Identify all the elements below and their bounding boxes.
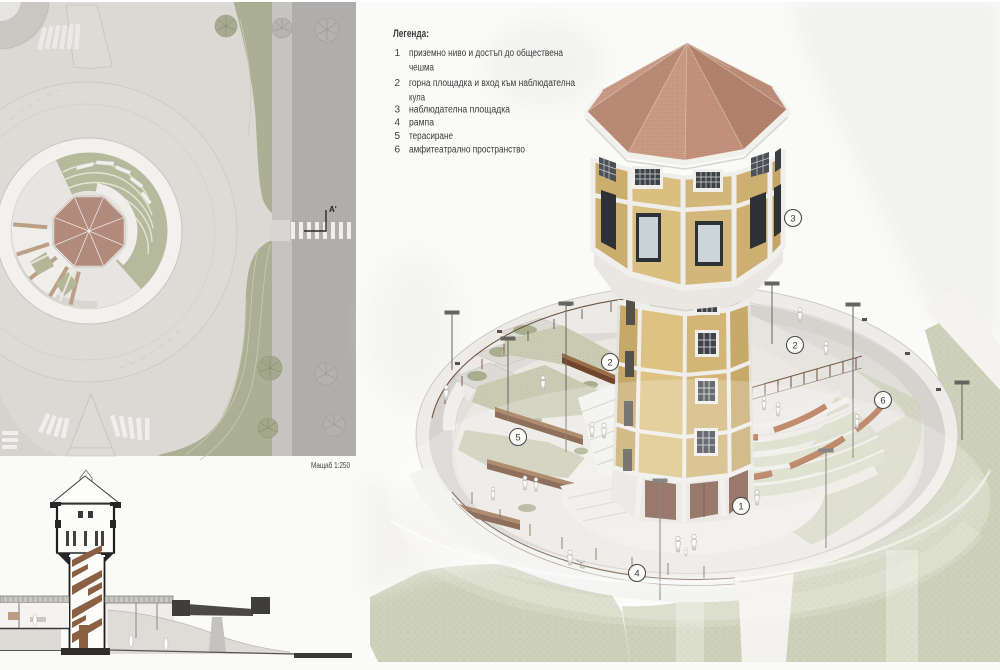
svg-text:5: 5 — [394, 131, 400, 142]
svg-text:2: 2 — [394, 78, 400, 89]
svg-text:Легенда:: Легенда: — [393, 28, 429, 40]
svg-text:терасиране: терасиране — [409, 131, 453, 142]
svg-text:2: 2 — [607, 358, 612, 369]
svg-text:наблюдателна площадка: наблюдателна площадка — [409, 104, 510, 116]
svg-text:2: 2 — [792, 341, 797, 352]
svg-text:рампа: рампа — [409, 118, 434, 129]
svg-text:Мащаб 1:250: Мащаб 1:250 — [311, 461, 350, 470]
svg-text:кула: кула — [409, 93, 425, 104]
svg-text:амфитеатрално пространство: амфитеатрално пространство — [409, 144, 525, 156]
svg-text:6: 6 — [394, 145, 400, 156]
svg-text:5: 5 — [515, 433, 520, 444]
svg-text:4: 4 — [634, 569, 639, 580]
svg-text:6: 6 — [880, 396, 885, 407]
svg-text:1: 1 — [738, 502, 743, 513]
svg-text:горна площадка и вход към набл: горна площадка и вход към наблюдателна — [409, 77, 575, 89]
svg-text:1: 1 — [394, 48, 400, 59]
svg-text:чешма: чешма — [409, 63, 434, 74]
svg-text:А': А' — [329, 205, 337, 214]
svg-text:4: 4 — [394, 118, 400, 129]
svg-text:3: 3 — [394, 105, 400, 116]
svg-text:приземно ниво и достъп до обще: приземно ниво и достъп до обществена — [409, 47, 563, 59]
svg-text:3: 3 — [790, 214, 795, 225]
